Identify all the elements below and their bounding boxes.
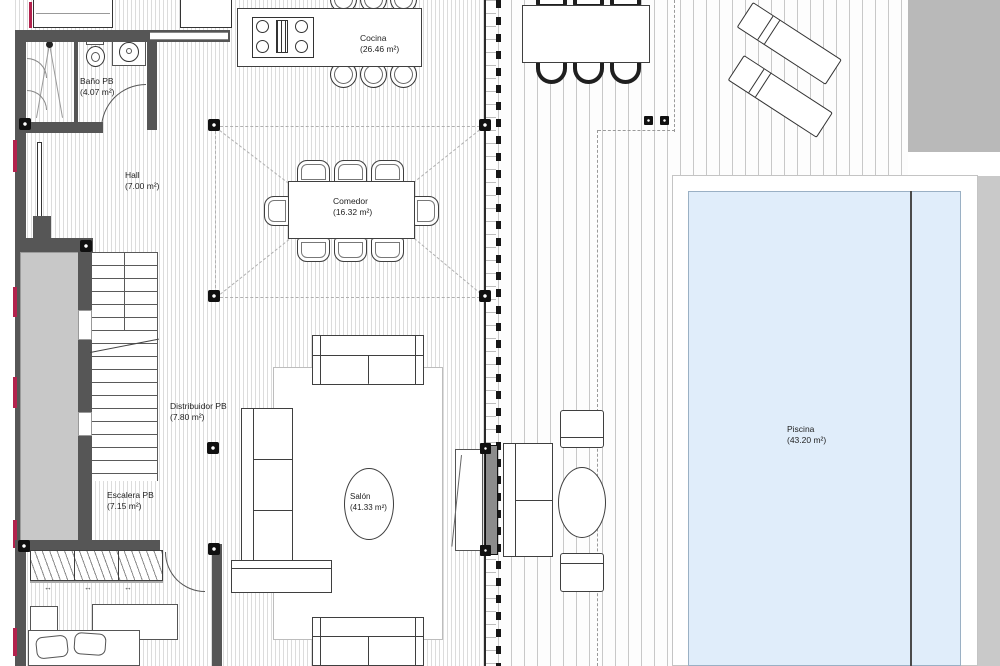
room-area: (7.80 m²)	[170, 412, 227, 423]
wardrobe-divider	[118, 550, 119, 581]
room-label-hall: Hall (7.00 m²)	[125, 170, 159, 192]
dining-chair	[264, 196, 290, 226]
section-mark	[29, 2, 32, 28]
burner-icon	[295, 20, 308, 33]
sofa	[312, 617, 424, 666]
room-label-distribuidor: Distribuidor PB (7.80 m²)	[170, 401, 227, 423]
bedroom-partition-wall	[212, 544, 222, 666]
dining-chair	[334, 238, 367, 262]
stair-wall-segment	[78, 340, 92, 412]
dining-chair	[413, 196, 439, 226]
closet-cabinet	[180, 0, 232, 28]
tv-panel-post	[480, 545, 491, 556]
burner-icon	[256, 40, 269, 53]
sliding-arrow: ↔	[84, 583, 92, 592]
room-area: (7.00 m²)	[125, 181, 159, 192]
outdoor-dining-table	[522, 5, 650, 63]
l-sofa	[241, 408, 293, 564]
entrance-door-return-wall	[33, 216, 51, 240]
room-area: (26.46 m²)	[360, 44, 399, 55]
wardrobe	[30, 550, 163, 581]
top-wall-window	[150, 32, 228, 40]
room-name: Distribuidor PB	[170, 401, 227, 412]
window-accent-mark	[13, 287, 17, 317]
right-boundary-strip	[978, 176, 1000, 666]
outdoor-sofa	[503, 443, 553, 557]
staircase	[92, 252, 158, 481]
entrance-door-leaf	[37, 142, 42, 217]
sliding-arrow: ↔	[44, 583, 52, 592]
stair-wall-segment	[78, 436, 92, 543]
pillow	[73, 632, 106, 656]
glass-wall-mullion-dashes	[496, 0, 501, 666]
outdoor-armchair	[560, 410, 604, 448]
terrace-gray-block	[908, 0, 1000, 152]
room-area: (7.15 m²)	[107, 501, 154, 512]
room-label-salon: Salón (41.33 m²)	[350, 491, 387, 513]
room-area: (41.33 m²)	[350, 502, 387, 513]
nightstand	[30, 606, 58, 632]
room-label-bano: Baño PB (4.07 m²)	[80, 76, 114, 98]
column-marker	[479, 119, 491, 131]
room-label-comedor: Comedor (16.32 m²)	[333, 196, 372, 218]
room-area: (4.07 m²)	[80, 87, 114, 98]
room-area: (43.20 m²)	[787, 435, 826, 446]
room-name: Baño PB	[80, 76, 114, 87]
toilet-bowl-icon	[91, 52, 100, 62]
wardrobe-divider	[74, 550, 75, 581]
window-accent-mark	[13, 140, 17, 172]
room-label-escalera: Escalera PB (7.15 m²)	[107, 490, 154, 512]
sofa	[312, 335, 424, 385]
dining-chair	[371, 238, 404, 262]
column-marker	[207, 442, 219, 454]
room-name: Cocina	[360, 33, 399, 44]
l-sofa-chaise	[231, 560, 332, 593]
floor-plan-canvas: ↔ ↔ ↔ Baño PB (4.07 m²) Hall (7.00 m²) C…	[0, 0, 1000, 666]
room-name: Piscina	[787, 424, 826, 435]
burner-icon	[256, 20, 269, 33]
room-area: (16.32 m²)	[333, 207, 372, 218]
window-accent-mark	[13, 628, 17, 656]
room-label-cocina: Cocina (26.46 m²)	[360, 33, 399, 55]
window-accent-mark	[13, 377, 17, 408]
pergola-post-marker	[644, 116, 653, 125]
column-marker	[80, 240, 92, 252]
room-name: Hall	[125, 170, 159, 181]
closet-cabinet	[33, 0, 113, 28]
shower-partition-wall	[74, 40, 78, 124]
room-name: Salón	[350, 491, 387, 502]
burner-icon	[295, 40, 308, 53]
pool-overflow-edge-line	[910, 191, 912, 666]
column-marker	[18, 540, 30, 552]
closet-shelf-line	[36, 13, 110, 14]
pillow	[35, 634, 69, 659]
column-marker	[208, 290, 220, 302]
room-name: Comedor	[333, 196, 372, 207]
glass-wall-frame-line	[484, 0, 486, 666]
sliding-arrow: ↔	[124, 583, 132, 592]
roof-overhang-dashline-horizontal	[598, 130, 675, 131]
stair-wall-segment	[78, 252, 92, 310]
stair-flight-divider	[124, 252, 125, 330]
glass-wall	[486, 0, 496, 666]
outdoor-armchair	[560, 553, 604, 592]
grill-icon	[276, 20, 288, 53]
column-marker	[208, 543, 220, 555]
column-marker	[479, 290, 491, 302]
tv-panel	[485, 445, 498, 555]
shower-head-icon	[46, 41, 53, 48]
dining-chair	[297, 238, 330, 262]
room-name: Escalera PB	[107, 490, 154, 501]
sink-drain-icon	[126, 48, 132, 54]
stair-wall-opening	[78, 412, 92, 436]
column-marker	[19, 118, 31, 130]
column-marker	[208, 119, 220, 131]
stair-wall-opening	[78, 310, 92, 340]
bathroom-wall-right	[147, 42, 157, 130]
pergola-post-marker	[660, 116, 669, 125]
roof-overhang-dashline-vertical	[674, 0, 675, 132]
tv-panel-post	[480, 443, 491, 454]
room-label-piscina: Piscina (43.20 m²)	[787, 424, 826, 446]
outdoor-coffee-table	[558, 467, 606, 538]
